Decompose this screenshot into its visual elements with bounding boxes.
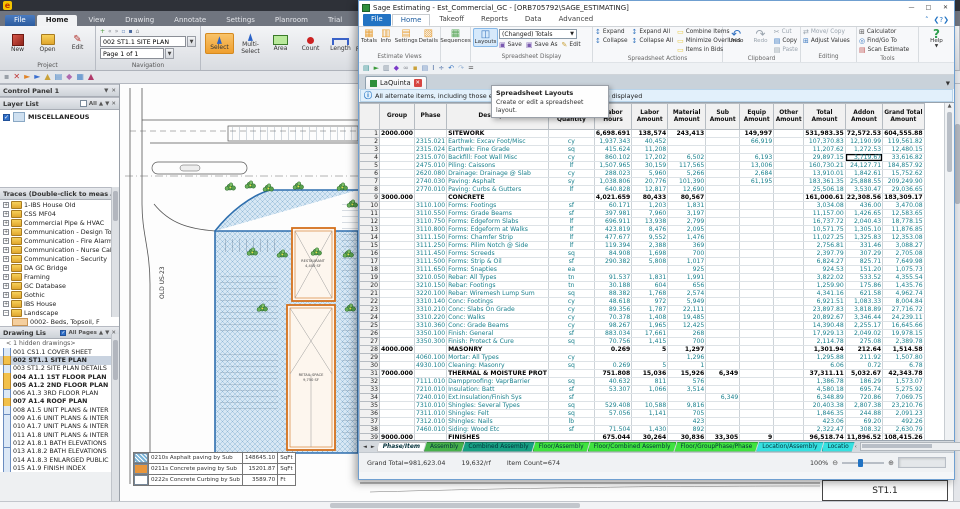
home-icon[interactable]: ⌂: [136, 28, 140, 35]
cell-addon[interactable]: 0.72: [845, 362, 882, 370]
expand-icon[interactable]: +: [3, 238, 9, 244]
cell-grand[interactable]: 12,480.15: [883, 146, 925, 154]
cell-other[interactable]: [774, 186, 804, 194]
cell-num[interactable]: 31: [360, 370, 380, 378]
trace-folder[interactable]: +Framing: [0, 272, 119, 281]
cell-material[interactable]: 1,017: [668, 258, 706, 266]
cell-hours[interactable]: 60.171: [594, 202, 631, 210]
layout-dropdown[interactable]: (Changed) Totals▼: [499, 29, 577, 39]
cell-desc[interactable]: SITEWORK: [447, 130, 549, 138]
cell-grand[interactable]: 4,962.74: [883, 290, 925, 298]
cell-group[interactable]: 4000.000: [380, 346, 415, 354]
add-icon[interactable]: +: [100, 28, 105, 35]
spreadsheet-row[interactable]: 72740.030Paving: Asphaltsy1,038.80620,77…: [360, 178, 925, 186]
drawing-horizontal-scrollbar[interactable]: [0, 501, 960, 509]
cell-material[interactable]: [668, 146, 706, 154]
cell-addon[interactable]: 186.29: [845, 378, 882, 386]
expand-icon[interactable]: +: [3, 247, 9, 253]
cell-addon[interactable]: 244.88: [845, 410, 882, 418]
cell-hours[interactable]: 53.307: [594, 386, 631, 394]
cell-desc[interactable]: Forms: Pilim Notch @ Side: [447, 242, 549, 250]
cell-desc[interactable]: Forms: Grade Beams: [447, 210, 549, 218]
sheet-horizontal-scrollbar[interactable]: [860, 442, 960, 451]
cell-equip[interactable]: [740, 346, 774, 354]
cell-hours[interactable]: 91.537: [594, 274, 631, 282]
cell-labor[interactable]: 1,430: [632, 426, 668, 434]
cell-other[interactable]: [774, 418, 804, 426]
cell-group[interactable]: [380, 330, 415, 338]
cell-num[interactable]: 34: [360, 394, 380, 402]
drawing-selector[interactable]: 002 ST1.1 SITE PLAN: [100, 36, 186, 47]
cell-addon[interactable]: 12,190.99: [845, 138, 882, 146]
cell-hours[interactable]: 1,507.965: [594, 162, 631, 170]
cell-sub[interactable]: [706, 250, 740, 258]
equals-icon[interactable]: =: [468, 65, 474, 72]
close-button[interactable]: ✕: [937, 2, 954, 13]
cell-other[interactable]: [774, 242, 804, 250]
count-tool-button[interactable]: Count: [297, 34, 324, 53]
length-tool-button[interactable]: Length: [327, 34, 354, 53]
cell-grand[interactable]: 183,309.17: [883, 194, 925, 202]
close-tab-icon[interactable]: ✕: [414, 79, 422, 87]
new-project-button[interactable]: New: [4, 34, 31, 53]
cell-other[interactable]: [774, 162, 804, 170]
cell-group[interactable]: [380, 250, 415, 258]
takeoff-tab-trial[interactable]: Trial: [319, 15, 351, 26]
print-icon[interactable]: ▤: [55, 73, 63, 81]
drawing-list-item[interactable]: 005 A1.2 2ND FLOOR PLAN: [0, 381, 119, 389]
zoom-out-icon[interactable]: ⊖: [832, 459, 838, 467]
cell-total[interactable]: 11,207.62: [804, 146, 846, 154]
cell-unit[interactable]: cy: [548, 314, 594, 322]
trace-folder[interactable]: +CSS MF04: [0, 209, 119, 218]
cell-other[interactable]: [774, 210, 804, 218]
cell-addon[interactable]: 2,049.02: [845, 330, 882, 338]
cell-phase[interactable]: [415, 346, 447, 354]
cell-hours[interactable]: 397.981: [594, 210, 631, 218]
cell-sub[interactable]: [706, 210, 740, 218]
cell-addon[interactable]: 307.29: [845, 250, 882, 258]
expand-icon[interactable]: +: [3, 274, 9, 280]
cell-group[interactable]: [380, 178, 415, 186]
cell-sub[interactable]: [706, 226, 740, 234]
spreadsheet-row[interactable]: 233310.210Conc: Slabs On Gradecy89.3561,…: [360, 306, 925, 314]
panel-collapse-icon[interactable]: ▲: [99, 101, 103, 107]
cell-hours[interactable]: 6,698.691: [594, 130, 631, 138]
cell-desc[interactable]: Siding: Wood Etc: [447, 426, 549, 434]
layouts-button[interactable]: ◫Layouts: [473, 28, 498, 47]
cell-grand[interactable]: 12,583.65: [883, 210, 925, 218]
cell-desc[interactable]: CONCRETE: [447, 194, 549, 202]
column-header-addon[interactable]: Addon Amount: [845, 104, 882, 130]
cell-labor[interactable]: 5,808: [632, 258, 668, 266]
cell-hours[interactable]: 0.269: [594, 362, 631, 370]
cell-desc[interactable]: Shingles: Nails: [447, 418, 549, 426]
cell-num[interactable]: 21: [360, 290, 380, 298]
cell-num[interactable]: 13: [360, 226, 380, 234]
cell-group[interactable]: [380, 386, 415, 394]
sage-tab-file[interactable]: File: [363, 14, 391, 26]
area-tool-button[interactable]: Area: [267, 33, 294, 53]
cell-total[interactable]: 1,259.90: [804, 282, 846, 290]
cell-labor[interactable]: 9,552: [632, 234, 668, 242]
cell-num[interactable]: 5: [360, 162, 380, 170]
spreadsheet-row[interactable]: 317000.000THERMAL & MOISTURE PROT751.808…: [360, 370, 925, 378]
cell-sub[interactable]: [706, 146, 740, 154]
cell-total[interactable]: 1,301.94: [804, 346, 846, 354]
cell-sub[interactable]: [706, 234, 740, 242]
cell-addon[interactable]: 825.71: [845, 258, 882, 266]
cell-equip[interactable]: [740, 322, 774, 330]
sheet-tab-assembly[interactable]: Assembly: [424, 442, 464, 452]
cell-total[interactable]: 4,341.16: [804, 290, 846, 298]
sheet-tab-locatio[interactable]: Locatio: [822, 442, 855, 452]
layers-icon[interactable]: ▪: [128, 28, 132, 35]
cell-equip[interactable]: [740, 226, 774, 234]
cell-equip[interactable]: [740, 266, 774, 274]
cell-phase[interactable]: 3310.140: [415, 298, 447, 306]
cell-num[interactable]: 6: [360, 170, 380, 178]
paste-button[interactable]: ▤Paste: [774, 46, 798, 54]
trace-folder[interactable]: +DA GC Bridge: [0, 263, 119, 272]
column-header-material[interactable]: Material Amount: [668, 104, 706, 130]
select-cursor-icon[interactable]: ►: [24, 73, 30, 81]
cell-equip[interactable]: [740, 306, 774, 314]
cell-group[interactable]: [380, 418, 415, 426]
cell-equip[interactable]: [740, 218, 774, 226]
cell-addon[interactable]: 436.00: [845, 202, 882, 210]
cell-equip[interactable]: [740, 410, 774, 418]
back-icon[interactable]: ↶: [448, 65, 454, 72]
cell-phase[interactable]: 3111.650: [415, 266, 447, 274]
settings-button[interactable]: ▤Settings: [395, 28, 418, 45]
cell-unit[interactable]: sf: [548, 210, 594, 218]
cell-other[interactable]: [774, 146, 804, 154]
cell-addon[interactable]: 621.58: [845, 290, 882, 298]
cell-group[interactable]: 7000.000: [380, 370, 415, 378]
cell-hours[interactable]: 89.356: [594, 306, 631, 314]
cell-num[interactable]: 28: [360, 346, 380, 354]
cell-unit[interactable]: [548, 194, 594, 202]
spreadsheet-row[interactable]: 52475.010Piling: Caissonslf1,507.96530,1…: [360, 162, 925, 170]
cell-addon[interactable]: 3,530.47: [845, 186, 882, 194]
cell-labor[interactable]: 12,817: [632, 186, 668, 194]
cell-other[interactable]: [774, 282, 804, 290]
cell-phase[interactable]: 3110.100: [415, 202, 447, 210]
cell-other[interactable]: [774, 226, 804, 234]
cell-sub[interactable]: [706, 130, 740, 138]
cell-material[interactable]: 80,567: [668, 194, 706, 202]
cell-group[interactable]: [380, 290, 415, 298]
cell-num[interactable]: 25: [360, 322, 380, 330]
cell-phase[interactable]: 7460.010: [415, 426, 447, 434]
cell-desc[interactable]: Drainage: Drainage @ Slab: [447, 170, 549, 178]
cell-total[interactable]: 11,157.00: [804, 210, 846, 218]
spreadsheet-row[interactable]: 203210.150Rebar: Footingstn30.1886046561…: [360, 282, 925, 290]
link-icon[interactable]: ∞: [403, 65, 409, 72]
cell-material[interactable]: 423: [668, 418, 706, 426]
estimate-spreadsheet[interactable]: GroupPhaseDescriptionTakeoff QuantityLab…: [359, 102, 954, 440]
delete-icon[interactable]: ✕: [13, 73, 20, 81]
cell-other[interactable]: [774, 322, 804, 330]
spreadsheet-row[interactable]: 193210.050Rebar: All Typestn91.5371,8311…: [360, 274, 925, 282]
cell-unit[interactable]: lf: [548, 218, 594, 226]
cell-labor[interactable]: [632, 266, 668, 274]
cell-group[interactable]: [380, 146, 415, 154]
cell-sub[interactable]: 6,349: [706, 394, 740, 402]
drawing-list-item[interactable]: 002 ST1.1 SITE PLAN: [0, 356, 119, 364]
cell-other[interactable]: [774, 154, 804, 162]
spreadsheet-row[interactable]: 103110.100Forms: Footingssf60.1711,2031,…: [360, 202, 925, 210]
cell-material[interactable]: 243,413: [668, 130, 706, 138]
cell-material[interactable]: 2,799: [668, 218, 706, 226]
drawing-list-item[interactable]: 011 A1.8 UNIT PLANS & INTER: [0, 431, 119, 439]
cell-sub[interactable]: [706, 258, 740, 266]
cell-hours[interactable]: 860.102: [594, 154, 631, 162]
cell-hours[interactable]: 40.632: [594, 378, 631, 386]
cell-group[interactable]: [380, 210, 415, 218]
select-tool-button[interactable]: ►Select: [205, 33, 234, 53]
drawing-list-item[interactable]: 008 A1.5 UNIT PLANS & INTER: [0, 406, 119, 414]
cell-num[interactable]: 1: [360, 130, 380, 138]
cell-sub[interactable]: [706, 266, 740, 274]
cell-unit[interactable]: sf: [548, 426, 594, 434]
cell-phase[interactable]: 3110.800: [415, 226, 447, 234]
cell-group[interactable]: [380, 394, 415, 402]
cell-grand[interactable]: 18,778.15: [883, 218, 925, 226]
cell-num[interactable]: 14: [360, 234, 380, 242]
cell-desc[interactable]: Rebar: All Types: [447, 274, 549, 282]
cell-equip[interactable]: [740, 202, 774, 210]
cell-equip[interactable]: [740, 402, 774, 410]
cell-labor[interactable]: [632, 394, 668, 402]
maximize-button[interactable]: □: [920, 2, 937, 13]
cell-group[interactable]: 3000.000: [380, 194, 415, 202]
cell-grand[interactable]: 24,239.11: [883, 314, 925, 322]
cell-num[interactable]: 24: [360, 314, 380, 322]
cell-addon[interactable]: 1,272.53: [845, 146, 882, 154]
cell-addon[interactable]: 22,308.56: [845, 194, 882, 202]
sheet-tab-floor-combined-assembly[interactable]: Floor/Combined Assembly: [588, 442, 677, 452]
cell-total[interactable]: 924.53: [804, 266, 846, 274]
ribbon-collapse-icon[interactable]: ˄: [925, 16, 929, 24]
trace-folder[interactable]: +Gothic: [0, 290, 119, 299]
column-header-num[interactable]: [360, 104, 380, 130]
cell-addon[interactable]: 1,426.65: [845, 210, 882, 218]
cell-sub[interactable]: [706, 386, 740, 394]
cell-sub[interactable]: [706, 362, 740, 370]
cell-material[interactable]: 1: [668, 362, 706, 370]
cell-unit[interactable]: sf: [548, 258, 594, 266]
cell-equip[interactable]: 2,684: [740, 170, 774, 178]
column-header-other[interactable]: Other Amount: [774, 104, 804, 130]
cell-other[interactable]: [774, 410, 804, 418]
cell-material[interactable]: 1,991: [668, 274, 706, 282]
cell-desc[interactable]: Shingles: Several Types: [447, 402, 549, 410]
spreadsheet-row[interactable]: 113110.550Forms: Grade Beamssf397.9817,9…: [360, 210, 925, 218]
cell-group[interactable]: [380, 402, 415, 410]
spreadsheet-row[interactable]: 143111.150Forms: Chamfer Striplf477.6779…: [360, 234, 925, 242]
takeoff-tab-drawing[interactable]: Drawing: [116, 15, 163, 26]
cell-total[interactable]: 23,897.83: [804, 306, 846, 314]
cell-labor[interactable]: 138,574: [632, 130, 668, 138]
cell-phase[interactable]: 3350.100: [415, 330, 447, 338]
column-header-grand[interactable]: Grand Total Amount: [883, 104, 925, 130]
cell-desc[interactable]: Shingles: Felt: [447, 410, 549, 418]
tab-list-dropdown-icon[interactable]: ▼: [946, 81, 950, 87]
zoom-in-icon[interactable]: ⊕: [888, 459, 894, 467]
cell-addon[interactable]: 3,346.44: [845, 314, 882, 322]
cell-phase[interactable]: 2315.070: [415, 154, 447, 162]
cell-material[interactable]: 1,831: [668, 202, 706, 210]
panel-dropdown-icon[interactable]: ▼: [105, 101, 109, 107]
takeoff-tab-planroom[interactable]: Planroom: [266, 15, 317, 26]
cell-unit[interactable]: sq: [548, 146, 594, 154]
cell-other[interactable]: [774, 194, 804, 202]
cell-material[interactable]: 705: [668, 410, 706, 418]
cell-other[interactable]: [774, 362, 804, 370]
expand-icon[interactable]: +: [3, 220, 9, 226]
cell-material[interactable]: 700: [668, 338, 706, 346]
redo-button[interactable]: ↷Redo: [749, 28, 771, 45]
cell-unit[interactable]: [548, 346, 594, 354]
drawing-list-item[interactable]: 013 A1.8.2 BATH ELEVATIONS: [0, 448, 119, 456]
cell-addon[interactable]: 151.20: [845, 266, 882, 274]
cell-desc[interactable]: Finish: General: [447, 330, 549, 338]
cell-phase[interactable]: 7312.010: [415, 418, 447, 426]
sage-tab-takeoff[interactable]: Takeoff: [431, 14, 472, 26]
ibeam-icon[interactable]: I: [432, 65, 434, 72]
cell-group[interactable]: [380, 410, 415, 418]
spreadsheet-row[interactable]: 32315.024Earthwk: Fine Gradesq415.62411,…: [360, 146, 925, 154]
cell-equip[interactable]: [740, 298, 774, 306]
cell-phase[interactable]: 3111.450: [415, 250, 447, 258]
cell-num[interactable]: 20: [360, 282, 380, 290]
cell-hours[interactable]: 30.188: [594, 282, 631, 290]
cell-equip[interactable]: [740, 194, 774, 202]
cell-material[interactable]: 19,485: [668, 314, 706, 322]
cell-equip[interactable]: 6,193: [740, 154, 774, 162]
cell-desc[interactable]: Forms: Screeds: [447, 250, 549, 258]
cell-sub[interactable]: [706, 410, 740, 418]
cell-material[interactable]: 5,949: [668, 298, 706, 306]
cell-phase[interactable]: 3110.750: [415, 218, 447, 226]
cell-grand[interactable]: 209,249.90: [883, 178, 925, 186]
drawing-list-item[interactable]: 003 ST1.2 SITE PLAN DETAILS: [0, 365, 119, 373]
cell-hours[interactable]: 883.034: [594, 330, 631, 338]
trace-folder[interactable]: +Communication - Design Too: [0, 227, 119, 236]
move-copy-button[interactable]: ⇄Move/ Copy: [803, 28, 850, 36]
cell-desc[interactable]: Dampproofing: VaprBarrier: [447, 378, 549, 386]
spreadsheet-row[interactable]: 327111.010Dampproofing: VaprBarriersq40.…: [360, 378, 925, 386]
cell-labor[interactable]: 40,452: [632, 138, 668, 146]
cell-phase[interactable]: 3350.300: [415, 338, 447, 346]
cell-unit[interactable]: [548, 130, 594, 138]
cell-group[interactable]: [380, 154, 415, 162]
cell-desc[interactable]: Conc: Grade Beams: [447, 322, 549, 330]
spreadsheet-row[interactable]: 377312.010Shingles: Nailslb423423.0669.2…: [360, 418, 925, 426]
copy-button[interactable]: ▤Copy: [774, 37, 798, 45]
cell-total[interactable]: 161,000.61: [804, 194, 846, 202]
cell-total[interactable]: 25,506.18: [804, 186, 846, 194]
cell-group[interactable]: [380, 306, 415, 314]
cell-hours[interactable]: [594, 418, 631, 426]
cell-desc[interactable]: Insulation: Batt: [447, 386, 549, 394]
cell-phase[interactable]: 4060.100: [415, 354, 447, 362]
cell-hours[interactable]: 88.382: [594, 290, 631, 298]
cell-equip[interactable]: [740, 338, 774, 346]
cell-grand[interactable]: 11,876.85: [883, 226, 925, 234]
cell-unit[interactable]: sq: [548, 378, 594, 386]
cell-phase[interactable]: 3310.360: [415, 322, 447, 330]
spreadsheet-row[interactable]: 304930.100Cleaning: Masonrysq0.269516.06…: [360, 362, 925, 370]
cell-desc[interactable]: Rebar: Footings: [447, 282, 549, 290]
cell-other[interactable]: [774, 314, 804, 322]
cell-labor[interactable]: 5,960: [632, 170, 668, 178]
cell-sub[interactable]: [706, 314, 740, 322]
cell-equip[interactable]: [740, 242, 774, 250]
spreadsheet-row[interactable]: 387460.010Siding: Wood Etcsf71.5041,4308…: [360, 426, 925, 434]
edit-layout-button[interactable]: ✎Edit: [562, 41, 581, 49]
cell-equip[interactable]: [740, 274, 774, 282]
cell-equip[interactable]: [740, 258, 774, 266]
cell-desc[interactable]: Paving: Curbs & Gutters: [447, 186, 549, 194]
cell-addon[interactable]: 695.74: [845, 386, 882, 394]
new-sheet-icon[interactable]: ▤: [363, 65, 370, 72]
cell-grand[interactable]: 3,470.08: [883, 202, 925, 210]
cell-grand[interactable]: 27,716.72: [883, 306, 925, 314]
cell-phase[interactable]: 3220.100: [415, 290, 447, 298]
traces-header[interactable]: Traces (Double-click to meas ▲▼✕: [0, 187, 119, 200]
cell-material[interactable]: 101,390: [668, 178, 706, 186]
cell-num[interactable]: 36: [360, 410, 380, 418]
cell-labor[interactable]: 1,698: [632, 250, 668, 258]
cell-labor[interactable]: 5: [632, 362, 668, 370]
cell-phase[interactable]: 2475.010: [415, 162, 447, 170]
cell-total[interactable]: 29,897.15: [804, 154, 846, 162]
cell-group[interactable]: [380, 242, 415, 250]
cell-addon[interactable]: 3,818.89: [845, 306, 882, 314]
cut-button[interactable]: ✂Cut: [774, 28, 798, 36]
scan-estimate-button[interactable]: ▤Scan Estimate: [859, 46, 909, 54]
cell-sub[interactable]: [706, 218, 740, 226]
cell-phase[interactable]: 3111.250: [415, 242, 447, 250]
cell-desc[interactable]: Conc: Slabs On Grade: [447, 306, 549, 314]
cell-material[interactable]: 369: [668, 242, 706, 250]
spreadsheet-row[interactable]: 93000.000CONCRETE4,021.65980,43380,56716…: [360, 194, 925, 202]
expand-icon[interactable]: +: [3, 202, 9, 208]
trace-folder[interactable]: +GC Database: [0, 281, 119, 290]
cell-num[interactable]: 3: [360, 146, 380, 154]
cell-other[interactable]: [774, 130, 804, 138]
cell-desc[interactable]: Piling: Caissons: [447, 162, 549, 170]
cell-addon[interactable]: 211.92: [845, 354, 882, 362]
cell-grand[interactable]: 12,353.08: [883, 234, 925, 242]
cell-other[interactable]: [774, 338, 804, 346]
book-icon[interactable]: ◆: [394, 65, 399, 72]
cell-material[interactable]: 6,502: [668, 154, 706, 162]
cell-other[interactable]: [774, 386, 804, 394]
cell-sub[interactable]: [706, 346, 740, 354]
find-goto-button[interactable]: ◎Find/Go To: [859, 37, 909, 45]
cell-grand[interactable]: 1,507.80: [883, 354, 925, 362]
cell-material[interactable]: 117,565: [668, 162, 706, 170]
cell-material[interactable]: 656: [668, 282, 706, 290]
cell-num[interactable]: 12: [360, 218, 380, 226]
sheet-tab-floor-groupphase-phase[interactable]: Floor/GroupPhase/Phase: [674, 442, 758, 452]
cell-hours[interactable]: 0.269: [594, 346, 631, 354]
trace-folder[interactable]: +Communication - Nurse Call: [0, 245, 119, 254]
